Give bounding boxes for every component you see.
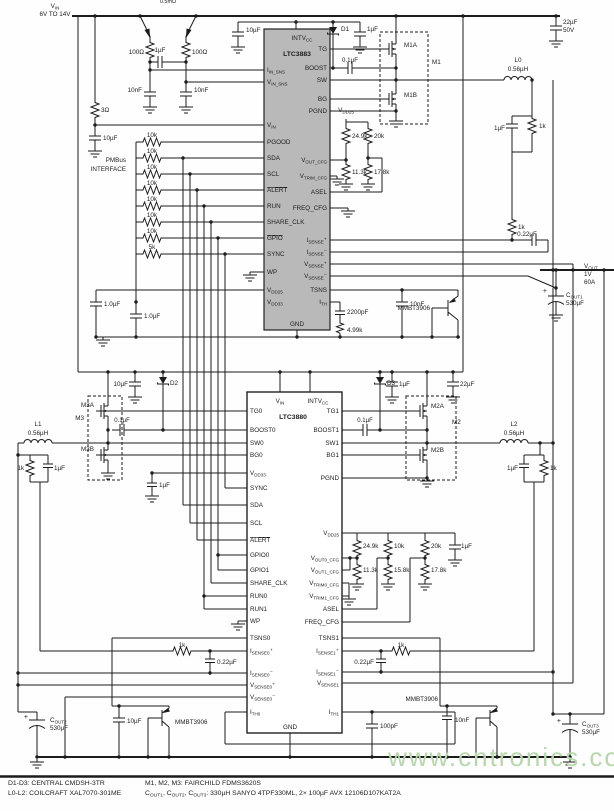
label: M3A bbox=[81, 402, 95, 409]
capacitor-icon bbox=[506, 116, 518, 136]
junction-dot bbox=[188, 172, 191, 175]
label: MMBT3906 bbox=[405, 696, 438, 703]
ground-icon bbox=[385, 394, 399, 403]
junction-dot bbox=[195, 188, 198, 191]
label: D1 bbox=[341, 26, 350, 33]
junction-dot bbox=[400, 288, 403, 291]
watermark: www.cntronics.com bbox=[388, 742, 614, 773]
junction-dot bbox=[202, 594, 205, 597]
label: 1k bbox=[17, 465, 25, 472]
label: 1k bbox=[518, 224, 526, 231]
label: 1.0µF bbox=[144, 313, 160, 320]
label: SDA bbox=[267, 155, 281, 162]
label: 0.56µH bbox=[28, 430, 49, 437]
label: M2 bbox=[452, 419, 461, 426]
resistor-icon bbox=[182, 40, 190, 59]
ground-icon bbox=[88, 148, 102, 157]
label: L1 bbox=[34, 421, 42, 428]
junction-dot bbox=[294, 20, 297, 23]
label: 5k bbox=[149, 244, 157, 251]
junction-dot bbox=[510, 238, 513, 241]
junction-dot bbox=[133, 370, 136, 373]
note: M1, M2, M3: FAIRCHILD FDMS3620S bbox=[145, 780, 261, 787]
label: GPIO1 bbox=[250, 567, 270, 574]
junction-dot bbox=[456, 335, 459, 338]
capacitor-icon bbox=[144, 84, 156, 104]
label: 1µF bbox=[507, 465, 518, 472]
label: 15.8k bbox=[394, 567, 410, 574]
diode-icon bbox=[158, 374, 169, 390]
junction-dot bbox=[370, 710, 373, 713]
label: 10k bbox=[147, 180, 158, 187]
junction-dot bbox=[378, 428, 381, 431]
inductor-icon bbox=[24, 440, 52, 444]
kelvin-arrow-icon bbox=[186, 29, 192, 39]
junction-dot bbox=[184, 60, 187, 63]
junction-dot bbox=[366, 156, 369, 159]
junction-dot bbox=[106, 428, 109, 431]
junction-dot bbox=[394, 109, 397, 112]
junction-dot bbox=[390, 370, 393, 373]
net-vout: VOUT bbox=[584, 263, 598, 271]
resistor-icon bbox=[140, 234, 164, 242]
junction-dot bbox=[425, 370, 428, 373]
label: 20k bbox=[374, 133, 385, 140]
label: 100pF bbox=[380, 723, 398, 730]
junction-dot bbox=[167, 755, 170, 758]
resistor-icon bbox=[540, 458, 548, 477]
label: PGND bbox=[309, 108, 328, 115]
label: FREQ_CFG bbox=[293, 205, 327, 212]
schematic: VIN6V TO 14V0.5mΩ100Ω100Ω1µF10nF10nF3Ω10… bbox=[0, 0, 614, 811]
label: WP bbox=[267, 269, 277, 276]
capacitor-icon bbox=[354, 24, 366, 44]
capacitor-icon bbox=[89, 128, 101, 148]
label: BG1 bbox=[326, 452, 339, 459]
junction-dot bbox=[425, 476, 428, 479]
label: 22µF bbox=[460, 381, 475, 388]
junction-dot bbox=[93, 14, 96, 17]
junction-dot bbox=[568, 712, 571, 715]
resistor-icon bbox=[91, 100, 99, 119]
label: 1V bbox=[584, 271, 593, 278]
ground-icon bbox=[243, 272, 257, 281]
mosfet-icon bbox=[415, 400, 427, 422]
junction-dot bbox=[530, 78, 533, 81]
junction-dot bbox=[150, 471, 153, 474]
label: BOOST bbox=[305, 65, 327, 72]
net-vin: VIN bbox=[51, 3, 60, 11]
resistor-icon bbox=[140, 250, 164, 258]
label: PGOOD bbox=[267, 139, 291, 146]
label: 1µF bbox=[367, 26, 378, 33]
label: INTERFACE bbox=[91, 166, 126, 173]
capacitor-icon bbox=[147, 477, 157, 493]
junction-dot bbox=[295, 335, 298, 338]
junction-dot bbox=[161, 370, 164, 373]
label: 10nF bbox=[455, 717, 470, 724]
label: SCL bbox=[250, 520, 263, 527]
ground-icon bbox=[381, 581, 395, 590]
junction-dot bbox=[386, 556, 389, 559]
label: VDD25 bbox=[338, 107, 354, 115]
ground-icon bbox=[30, 759, 44, 768]
ground-icon bbox=[231, 621, 245, 630]
resistor-icon bbox=[146, 40, 154, 59]
junction-dot bbox=[445, 704, 448, 707]
ground-icon bbox=[101, 470, 115, 479]
junction-dot bbox=[16, 683, 19, 686]
junction-dot bbox=[551, 670, 554, 673]
capacitor-icon bbox=[43, 458, 53, 474]
ground-icon bbox=[350, 581, 364, 590]
label: ALERT bbox=[250, 537, 270, 544]
junction-dot bbox=[370, 755, 373, 758]
junction-dot bbox=[148, 60, 151, 63]
mosfet-icon bbox=[415, 444, 427, 466]
junction-dot bbox=[378, 370, 381, 373]
label: 1µF bbox=[54, 465, 65, 472]
label: ASEL bbox=[323, 606, 340, 613]
junction-dot bbox=[223, 252, 226, 255]
label: TSNS bbox=[310, 287, 327, 294]
pnp-arrow-icon bbox=[491, 708, 498, 713]
junction-dot bbox=[425, 441, 428, 444]
junction-dot bbox=[571, 268, 574, 271]
label: PMBus bbox=[106, 157, 126, 164]
junction-dot bbox=[554, 286, 557, 289]
label: 1k bbox=[550, 465, 558, 472]
capacitor-icon bbox=[90, 294, 102, 314]
junction-dot bbox=[288, 755, 291, 758]
junction-dot bbox=[348, 556, 351, 559]
label: 11.3k bbox=[352, 169, 368, 176]
capacitor-icon bbox=[519, 458, 529, 474]
label: 10k bbox=[147, 164, 158, 171]
schematic-page: VIN6V TO 14V0.5mΩ100Ω100Ω1µF10nF10nF3Ω10… bbox=[0, 0, 614, 811]
label: 1µF bbox=[461, 543, 472, 550]
label: 0.22µF bbox=[354, 659, 374, 666]
junction-dot bbox=[93, 123, 96, 126]
ground-icon bbox=[389, 118, 403, 127]
resistor-icon bbox=[342, 162, 350, 181]
capacitor-icon bbox=[449, 537, 461, 557]
label: MMBT3906 bbox=[175, 719, 208, 726]
junction-dot bbox=[146, 755, 149, 758]
note: D1-D3: CENTRAL CMDSH-3TR bbox=[8, 780, 105, 787]
junction-dot bbox=[184, 80, 187, 83]
junction-dot bbox=[379, 649, 382, 652]
label: 24.9k bbox=[352, 133, 368, 140]
junction-dot bbox=[134, 300, 137, 303]
diode-icon bbox=[375, 374, 386, 390]
junction-dot bbox=[355, 556, 358, 559]
label: M3B bbox=[81, 446, 94, 453]
ic-name: LTC3880 bbox=[279, 414, 307, 421]
junction-dot bbox=[161, 428, 164, 431]
junction-dot bbox=[338, 335, 341, 338]
label: 0.1µF bbox=[357, 418, 373, 424]
capacitor-icon bbox=[129, 374, 141, 394]
capacitor-icon bbox=[113, 710, 125, 730]
capacitor-icon bbox=[335, 305, 345, 321]
resistor-icon bbox=[421, 538, 429, 557]
label: WP bbox=[250, 618, 260, 625]
label: 10k bbox=[147, 196, 158, 203]
ground-icon bbox=[549, 312, 563, 321]
capacitor-icon bbox=[180, 84, 192, 104]
junction-dot bbox=[425, 428, 428, 431]
junction-dot bbox=[134, 335, 137, 338]
junction-dot bbox=[331, 20, 334, 23]
label: MMBT3906 bbox=[397, 305, 430, 312]
junction-dot bbox=[35, 755, 38, 758]
label: GND bbox=[283, 724, 297, 731]
junction-dot bbox=[106, 370, 109, 373]
label: SYNC bbox=[267, 251, 285, 258]
junction-dot bbox=[423, 556, 426, 559]
label: GPIO0 bbox=[250, 552, 270, 559]
resistor-icon bbox=[353, 538, 361, 557]
label: SDA bbox=[250, 502, 264, 509]
label: 10k bbox=[147, 212, 158, 219]
label: SHARE_CLK bbox=[250, 580, 288, 587]
label: SW0 bbox=[250, 440, 264, 447]
label: + bbox=[24, 714, 28, 721]
capacitor-icon bbox=[550, 18, 562, 38]
junction-dot bbox=[209, 220, 212, 223]
label: 1k bbox=[398, 642, 406, 649]
junction-dot bbox=[16, 671, 19, 674]
capacitor-icon bbox=[130, 306, 142, 326]
ground-icon bbox=[96, 337, 110, 346]
junction-dot bbox=[16, 453, 19, 456]
junction-dot bbox=[208, 649, 211, 652]
label: FREQ_CFG bbox=[305, 619, 339, 626]
pnp-arrow-icon bbox=[163, 708, 170, 713]
label: TSNS1 bbox=[319, 635, 340, 642]
label: M2B bbox=[431, 447, 444, 454]
junction-dot bbox=[216, 553, 219, 556]
ground-icon bbox=[341, 208, 355, 217]
capacitor-icon bbox=[232, 24, 244, 44]
polarized-capacitor-icon bbox=[562, 716, 578, 740]
label: RUN0 bbox=[250, 593, 268, 600]
label: 1k bbox=[539, 123, 547, 130]
junction-dot bbox=[394, 78, 397, 81]
ground-icon bbox=[361, 181, 375, 190]
junction-dot bbox=[94, 335, 97, 338]
label: 60A bbox=[584, 279, 596, 286]
resistor-icon bbox=[140, 186, 164, 194]
resistor-icon bbox=[140, 170, 164, 178]
capacitor-icon bbox=[376, 653, 386, 669]
label: RUN1 bbox=[250, 606, 268, 613]
label: L2 bbox=[510, 421, 518, 428]
note: COUT1, COUT2, COUT3: 330µH SANYO 4TPF330… bbox=[145, 790, 401, 799]
label: SYNC bbox=[250, 485, 268, 492]
resistor-icon bbox=[337, 321, 344, 337]
label: 1µF bbox=[159, 482, 170, 489]
label: 530µF bbox=[566, 300, 584, 307]
label: 10nF bbox=[128, 87, 143, 94]
ground-icon bbox=[231, 44, 245, 53]
resistor-icon bbox=[140, 202, 164, 210]
junction-dot bbox=[451, 370, 454, 373]
junction-dot bbox=[106, 441, 109, 444]
junction-dot bbox=[194, 14, 197, 17]
ground-icon bbox=[549, 38, 563, 47]
label: 17.8k bbox=[374, 169, 390, 176]
mosfet-icon bbox=[384, 38, 396, 60]
label: 10µF bbox=[127, 718, 142, 725]
label: COUT3 bbox=[582, 721, 599, 729]
label: TSNS0 bbox=[250, 635, 271, 642]
label: M2A bbox=[431, 403, 445, 410]
label: 530µF bbox=[50, 725, 68, 732]
label: 4.99k bbox=[347, 327, 363, 334]
label: D2 bbox=[170, 380, 179, 387]
polarized-capacitor-icon bbox=[29, 712, 45, 736]
label: 1.0µF bbox=[104, 301, 120, 308]
label: 0.56µH bbox=[504, 430, 525, 437]
resistor-icon bbox=[528, 116, 536, 135]
label: 1µF bbox=[494, 125, 505, 132]
label: 10µF bbox=[103, 135, 118, 142]
junction-dot bbox=[551, 268, 554, 271]
junction-dot bbox=[554, 14, 557, 17]
junction-dot bbox=[117, 704, 120, 707]
inductor-icon bbox=[504, 77, 532, 81]
label: 0.22µF bbox=[217, 659, 237, 666]
label: SCL bbox=[267, 171, 280, 178]
label: ALERT bbox=[267, 187, 287, 194]
ground-icon bbox=[418, 581, 432, 590]
ground-icon bbox=[145, 493, 159, 502]
junction-dot bbox=[602, 268, 605, 271]
label: 17.8k bbox=[431, 567, 447, 574]
junction-dot bbox=[344, 158, 347, 161]
junction-dot bbox=[138, 14, 141, 17]
resistor-icon bbox=[384, 562, 392, 581]
label: PGND bbox=[321, 475, 340, 482]
label: SW bbox=[317, 77, 327, 84]
label: 10k bbox=[147, 228, 158, 235]
label: COUT1 bbox=[566, 292, 583, 300]
label: + bbox=[543, 288, 547, 295]
inductor-icon bbox=[500, 440, 528, 444]
label: GND bbox=[290, 321, 304, 328]
junction-dot bbox=[538, 441, 541, 444]
capacitor-icon bbox=[150, 56, 170, 68]
junction-dot bbox=[216, 236, 219, 239]
ground-icon bbox=[342, 596, 356, 605]
note: L0-L2: COILCRAFT XAL7070-301ME bbox=[8, 790, 122, 797]
ground-icon bbox=[448, 557, 462, 566]
label: ASEL bbox=[311, 189, 328, 196]
resistor-icon bbox=[384, 538, 392, 557]
junction-dot bbox=[379, 670, 382, 673]
label: BG bbox=[318, 96, 327, 103]
polarized-capacitor-icon bbox=[548, 288, 564, 312]
junction-dot bbox=[400, 335, 403, 338]
junction-dot bbox=[551, 441, 554, 444]
label: BG0 bbox=[250, 452, 263, 459]
ic-name: LTC3883 bbox=[283, 51, 311, 58]
label: 10k bbox=[147, 132, 158, 139]
label: 0.56µH bbox=[508, 66, 529, 73]
kelvin-arrow-icon bbox=[145, 29, 151, 39]
capacitor-icon bbox=[355, 424, 375, 436]
label: L0 bbox=[514, 57, 522, 64]
label: TG0 bbox=[250, 408, 263, 415]
mosfet-icon bbox=[384, 88, 396, 110]
label: 11.3k bbox=[363, 567, 379, 574]
label: 24.9k bbox=[363, 543, 379, 550]
label: 0.22µF bbox=[517, 231, 537, 238]
resistor-icon bbox=[508, 217, 516, 236]
label: TG1 bbox=[327, 408, 340, 415]
junction-dot bbox=[394, 14, 397, 17]
junction-dot bbox=[202, 204, 205, 207]
label: 6V TO 14V bbox=[40, 11, 72, 18]
label: + bbox=[557, 718, 561, 725]
junction-dot bbox=[331, 66, 334, 69]
ground-icon bbox=[446, 394, 460, 403]
label: 20k bbox=[431, 543, 442, 550]
label: TG bbox=[318, 46, 327, 53]
label: 1k bbox=[179, 642, 187, 649]
label: 530µF bbox=[582, 729, 600, 736]
capacitor-icon bbox=[447, 374, 459, 394]
ground-icon bbox=[143, 104, 157, 113]
junction-dot bbox=[430, 335, 433, 338]
label: 10k bbox=[394, 543, 405, 550]
junction-dot bbox=[181, 156, 184, 159]
junction-dot bbox=[208, 671, 211, 674]
label: 22µF bbox=[563, 19, 578, 26]
label: SW1 bbox=[325, 440, 339, 447]
resistor-icon bbox=[353, 562, 361, 581]
resistor-icon bbox=[140, 218, 164, 226]
label: 100Ω bbox=[129, 49, 145, 56]
junction-dot bbox=[461, 14, 464, 17]
junction-dot bbox=[394, 66, 397, 69]
label: D3 bbox=[387, 380, 396, 387]
label: M1B bbox=[404, 92, 417, 99]
label: 1µF bbox=[399, 381, 410, 388]
label: 100Ω bbox=[192, 49, 208, 56]
label: BOOST0 bbox=[250, 427, 276, 434]
junction-dot bbox=[117, 755, 120, 758]
label: SHARE_CLK bbox=[267, 219, 305, 226]
label: 50V bbox=[563, 27, 575, 34]
label: M1A bbox=[404, 42, 418, 49]
label: 10µF bbox=[246, 27, 261, 34]
label: 0.1µF bbox=[342, 57, 358, 64]
label: 3Ω bbox=[101, 107, 110, 114]
junction-dot bbox=[278, 370, 281, 373]
label: 10µF bbox=[114, 381, 129, 388]
junction-dot bbox=[63, 755, 66, 758]
capacitor-icon bbox=[205, 653, 215, 669]
label: 0.1µF bbox=[114, 418, 130, 424]
resistor-icon bbox=[342, 126, 350, 145]
label: BOOST1 bbox=[313, 427, 339, 434]
label: 10k bbox=[147, 148, 158, 155]
resistor-icon bbox=[26, 458, 34, 477]
ground-icon bbox=[128, 394, 142, 403]
